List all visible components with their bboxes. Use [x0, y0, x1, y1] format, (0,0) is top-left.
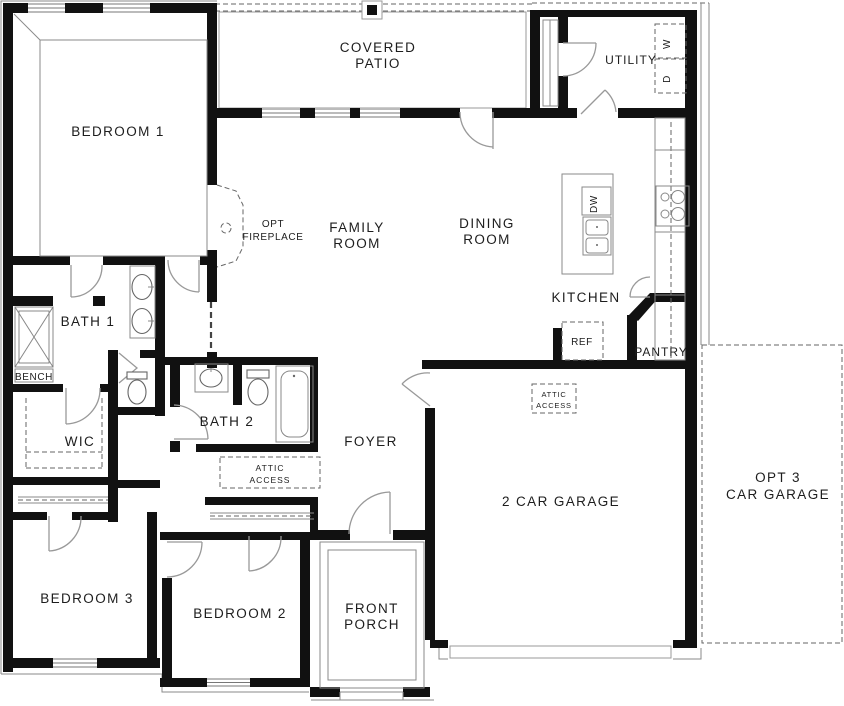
- window-bedroom1-a: [28, 3, 65, 13]
- label-dining-room-2: ROOM: [463, 232, 511, 247]
- label-refrigerator: REF: [571, 337, 593, 348]
- window-family-a: [262, 108, 300, 118]
- door-bedroom2-entry: [167, 542, 202, 577]
- kitchen-sink-box: [583, 217, 611, 255]
- label-pantry: PANTRY: [634, 345, 688, 359]
- garage-door: [448, 640, 673, 658]
- door-bedroom2-closet: [249, 536, 281, 571]
- floor-plan-drawing: BEDROOM 1 COVERED PATIO UTILITY W D OPT …: [0, 0, 844, 706]
- bath2-toilet: [247, 370, 269, 405]
- window-family-b: [315, 108, 350, 118]
- label-family-room-2: ROOM: [333, 236, 381, 251]
- label-covered-patio-2: PATIO: [355, 56, 401, 71]
- label-family-room-1: FAMILY: [329, 220, 384, 235]
- label-foyer: FOYER: [344, 434, 398, 449]
- label-attic-access-garage-2: ACCESS: [536, 401, 572, 410]
- label-bedroom3: BEDROOM 3: [40, 591, 134, 606]
- window-bedroom3: [53, 658, 97, 668]
- label-bench: BENCH: [15, 372, 53, 383]
- label-dishwasher: DW: [589, 195, 600, 213]
- label-opt-garage-1: OPT 3: [755, 470, 801, 485]
- bath2-tub: [276, 366, 313, 442]
- bath1-vanity: [130, 266, 155, 338]
- label-opt-garage-2: CAR GARAGE: [726, 487, 830, 502]
- window-family-c: [360, 108, 400, 118]
- kitchen-island: [562, 174, 613, 274]
- door-garage-entry: [402, 373, 430, 406]
- room-labels: BEDROOM 1 COVERED PATIO UTILITY W D OPT …: [15, 39, 830, 632]
- cooktop: [656, 186, 689, 226]
- mud-hall-cabinet: [543, 20, 558, 106]
- label-wic: WIC: [65, 434, 95, 449]
- label-washer: W: [662, 39, 673, 49]
- door-utility-hall-angled: [581, 90, 616, 114]
- label-front-porch-1: FRONT: [345, 601, 399, 616]
- label-kitchen: KITCHEN: [551, 290, 620, 305]
- bath2-vanity: [195, 364, 228, 392]
- label-attic-access-hall-2: ACCESS: [250, 475, 291, 485]
- label-opt-fireplace-2: FIREPLACE: [243, 232, 304, 243]
- label-bedroom2: BEDROOM 2: [193, 606, 287, 621]
- kitchen-counter: [655, 118, 685, 360]
- label-dryer: D: [662, 75, 673, 83]
- door-bedroom3: [49, 516, 81, 551]
- label-opt-fireplace-1: OPT: [262, 219, 284, 230]
- door-pantry: [630, 277, 650, 297]
- label-attic-access-garage-1: ATTIC: [541, 390, 566, 399]
- bath1-shower: [15, 307, 53, 382]
- label-bedroom1: BEDROOM 1: [71, 124, 165, 139]
- label-bath1: BATH 1: [61, 314, 116, 329]
- door-wic: [66, 388, 100, 424]
- label-bath2: BATH 2: [200, 414, 255, 429]
- window-bedroom2: [207, 678, 250, 687]
- floor-plan-page: BEDROOM 1 COVERED PATIO UTILITY W D OPT …: [0, 0, 844, 706]
- label-dining-room-1: DINING: [459, 216, 515, 231]
- bath1-toilet: [127, 372, 147, 404]
- label-attic-access-hall-1: ATTIC: [256, 463, 285, 473]
- wic-shelving: [26, 398, 102, 468]
- label-front-porch-2: PORCH: [344, 617, 400, 632]
- door-bedroom1: [71, 265, 102, 297]
- opt-fireplace-outline: [217, 185, 243, 267]
- label-garage: 2 CAR GARAGE: [502, 494, 620, 509]
- label-covered-patio-1: COVERED: [340, 40, 417, 55]
- patio-post: [367, 5, 377, 15]
- window-bedroom1-b: [103, 3, 150, 13]
- label-utility: UTILITY: [605, 53, 657, 67]
- door-suite-hall: [168, 260, 199, 292]
- door-front-entry: [349, 492, 390, 534]
- door-utility: [563, 43, 596, 76]
- door-patio-back: [460, 112, 493, 149]
